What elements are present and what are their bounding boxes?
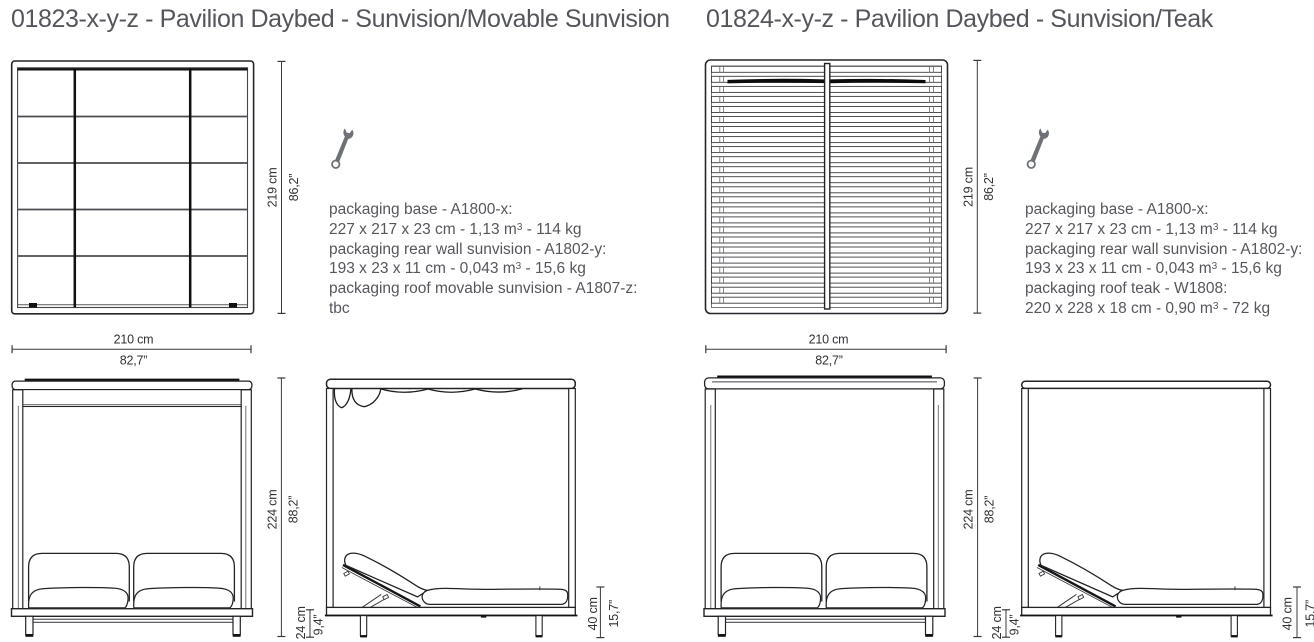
- svg-text:224 cm: 224 cm: [265, 490, 279, 530]
- svg-text:40 cm: 40 cm: [586, 597, 600, 630]
- svg-text:40 cm: 40 cm: [1280, 597, 1294, 630]
- svg-text:82,7”: 82,7”: [815, 354, 843, 368]
- svg-text:24 cm: 24 cm: [990, 606, 1004, 639]
- svg-text:210 cm: 210 cm: [809, 333, 849, 347]
- svg-text:9,4”: 9,4”: [312, 615, 326, 636]
- svg-text:88,2”: 88,2”: [286, 496, 300, 524]
- svg-text:219 cm: 219 cm: [961, 167, 975, 207]
- svg-text:82,7”: 82,7”: [120, 354, 148, 368]
- svg-text:15,7”: 15,7”: [607, 600, 621, 628]
- svg-text:219 cm: 219 cm: [265, 168, 279, 208]
- svg-text:86,2”: 86,2”: [287, 174, 301, 202]
- svg-text:88,2”: 88,2”: [983, 496, 997, 524]
- svg-text:86,2”: 86,2”: [982, 173, 996, 201]
- svg-text:210 cm: 210 cm: [114, 333, 154, 347]
- svg-text:9,4”: 9,4”: [1008, 615, 1022, 636]
- svg-text:15,7”: 15,7”: [1304, 600, 1314, 628]
- svg-text:224 cm: 224 cm: [962, 490, 976, 530]
- svg-text:24 cm: 24 cm: [294, 606, 308, 639]
